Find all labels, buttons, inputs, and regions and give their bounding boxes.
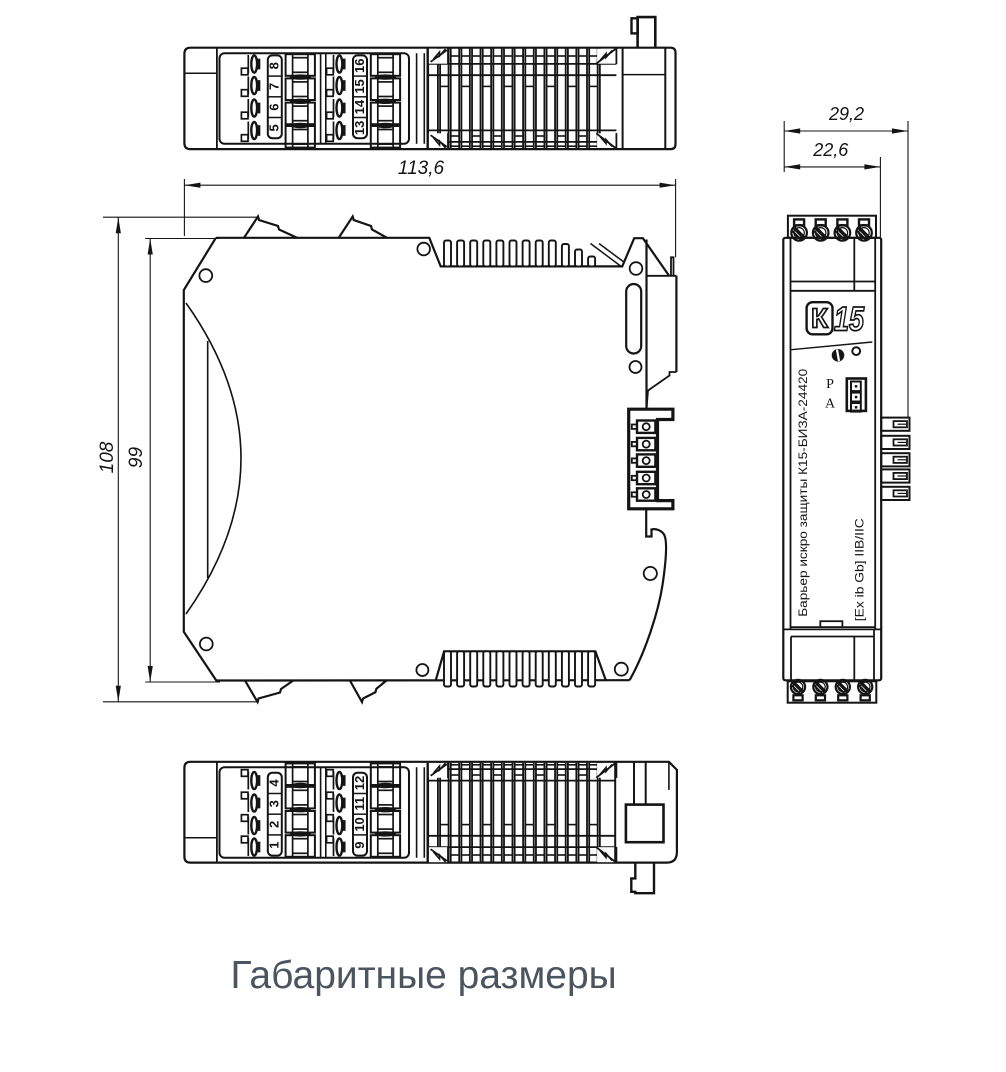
svg-text:5: 5: [267, 124, 282, 131]
svg-text:2: 2: [267, 821, 282, 828]
svg-text:29,2: 29,2: [828, 104, 864, 124]
svg-text:A: A: [825, 397, 836, 412]
svg-text:13: 13: [352, 121, 367, 135]
svg-text:1: 1: [267, 842, 282, 849]
svg-text:6: 6: [267, 104, 282, 111]
svg-text:9: 9: [352, 842, 367, 849]
svg-text:8: 8: [267, 62, 282, 69]
svg-text:3: 3: [267, 800, 282, 807]
svg-text:11: 11: [352, 797, 367, 811]
svg-text:15: 15: [834, 301, 865, 339]
svg-text:P: P: [826, 377, 834, 392]
svg-text:99: 99: [126, 447, 147, 469]
svg-text:12: 12: [352, 776, 367, 790]
svg-text:4: 4: [267, 779, 282, 787]
svg-text:Барьер искро защиты К15-БИЗА-2: Барьер искро защиты К15-БИЗА-24420: [796, 369, 810, 617]
svg-text:108: 108: [97, 441, 118, 473]
svg-text:15: 15: [352, 79, 367, 93]
svg-text:К: К: [811, 303, 829, 334]
svg-text:14: 14: [352, 99, 367, 114]
svg-text:22,6: 22,6: [812, 140, 849, 160]
svg-text:10: 10: [352, 817, 367, 831]
svg-text:7: 7: [267, 83, 282, 90]
svg-text:16: 16: [352, 59, 367, 73]
svg-text:[Ex ib Gb] IIB/IIC: [Ex ib Gb] IIB/IIC: [853, 518, 867, 621]
svg-text:Габаритные размеры: Габаритные размеры: [230, 954, 616, 997]
svg-text:113,6: 113,6: [398, 158, 445, 179]
